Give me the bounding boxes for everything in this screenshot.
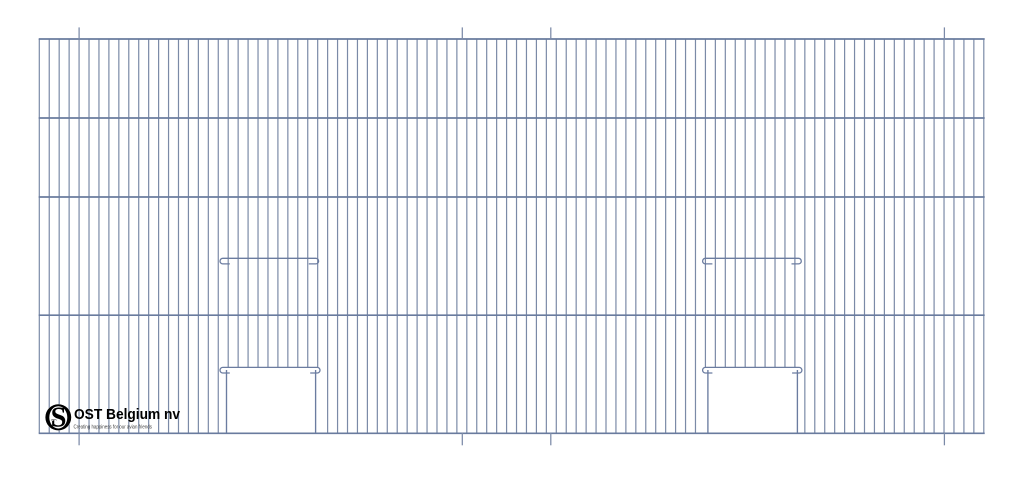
svg-text:T: T <box>51 417 57 427</box>
svg-text:Creating happiness for our avi: Creating happiness for our avian friends <box>74 424 153 430</box>
svg-text:OST Belgium nv: OST Belgium nv <box>74 406 180 423</box>
